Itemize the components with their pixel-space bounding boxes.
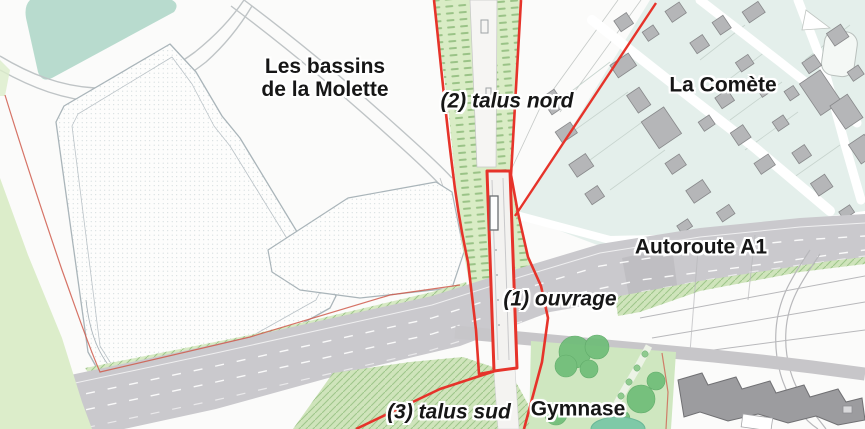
map-canvas (0, 0, 865, 429)
label-les-bassins-line2: de la Molette (261, 78, 388, 101)
label-les-bassins-line1: Les bassins (261, 55, 388, 78)
ouvrage-structure (487, 171, 517, 371)
label-les-bassins: Les bassins de la Molette (261, 55, 388, 101)
site-plan-map: Les bassins de la Molette (2) talus nord… (0, 0, 865, 429)
label-la-comete: La Comète (669, 74, 776, 97)
label-talus-nord: (2) talus nord (440, 90, 573, 113)
label-talus-sud: (3) talus sud (387, 401, 511, 424)
ouvrage-deck (490, 196, 498, 230)
label-gymnase: Gymnase (531, 398, 626, 421)
label-autoroute-a1: Autoroute A1 (635, 236, 767, 259)
label-ouvrage: (1) ouvrage (503, 288, 616, 311)
